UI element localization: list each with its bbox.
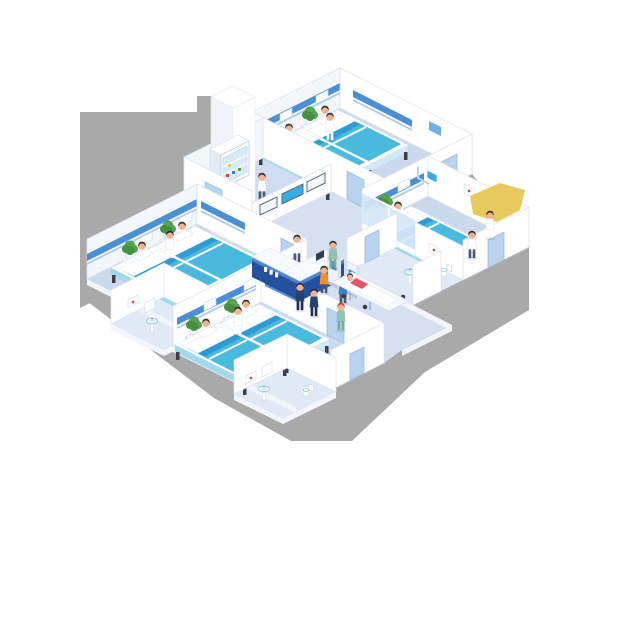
hospital-illustration: Isometric hospital ward floor illustrati… — [0, 0, 640, 640]
stretcher-patient-head — [347, 275, 353, 281]
isometric-hospital-scene: Isometric hospital ward floor illustrati… — [0, 0, 640, 640]
